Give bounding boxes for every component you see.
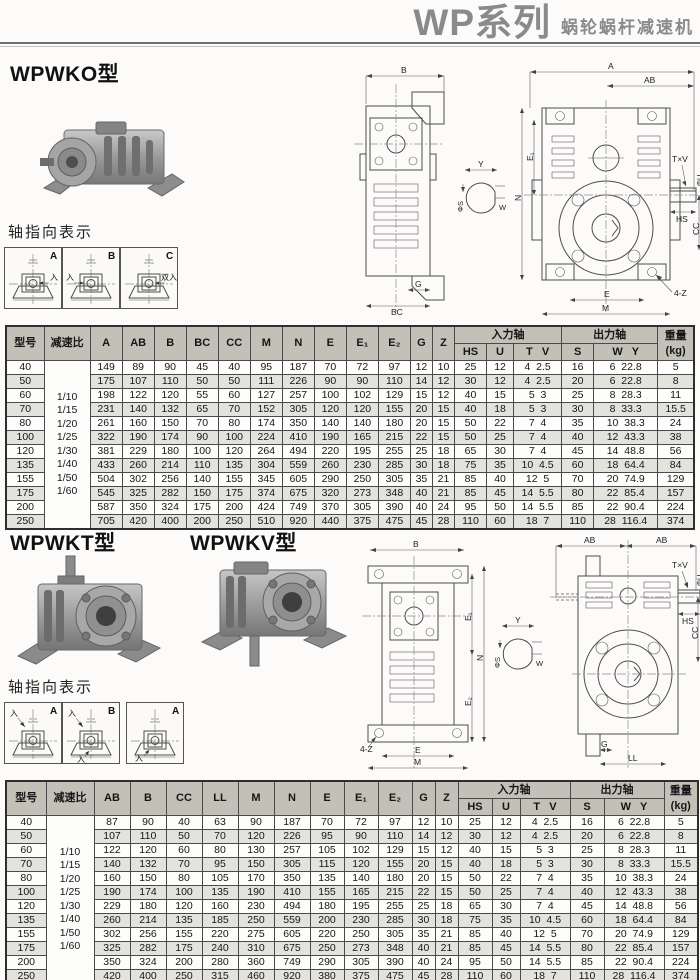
value-cell: 110	[454, 515, 486, 530]
value-cell: 381	[90, 445, 122, 459]
value-cell: 87	[94, 816, 130, 830]
value-cell: 226	[282, 375, 314, 389]
svg-text:A: A	[172, 706, 179, 717]
col-group-output-shaft: 出力轴	[562, 326, 658, 344]
value-cell: 35	[570, 872, 604, 886]
value-cell: 80	[218, 417, 250, 431]
value-cell: 4 2.5	[520, 816, 570, 830]
value-cell: 155	[166, 928, 202, 942]
value-cell: 22 85.4	[594, 487, 658, 501]
value-cell: 160	[202, 900, 238, 914]
value-cell: 175	[218, 487, 250, 501]
col-group-input-shaft: 入力轴	[458, 781, 570, 799]
value-cell: 5	[664, 816, 698, 830]
value-cell: 320	[314, 487, 346, 501]
value-cell: 60	[218, 389, 250, 403]
wpwkv-product-photo	[198, 558, 348, 670]
wpwkt-heading: WPWKT型	[10, 527, 116, 557]
value-cell: 310	[238, 942, 274, 956]
table-row: 802611601507080174350140140180201550227 …	[6, 417, 694, 431]
value-cell: 122	[122, 389, 154, 403]
value-cell: 305	[378, 928, 412, 942]
axis-diagram-a: A 入	[4, 247, 62, 309]
col-e: E	[310, 781, 344, 816]
value-cell: 25	[410, 445, 432, 459]
col-ratio: 减速比	[44, 326, 90, 361]
value-cell: 120	[314, 403, 346, 417]
svg-text:HS: HS	[682, 616, 694, 626]
value-cell: 90	[314, 375, 346, 389]
value-cell: 180	[310, 900, 344, 914]
value-cell: 348	[378, 487, 410, 501]
value-cell: 132	[130, 858, 166, 872]
col-g: G	[410, 326, 432, 361]
value-cell: 195	[346, 445, 378, 459]
value-cell: 374	[664, 970, 698, 980]
value-cell: 11	[664, 844, 698, 858]
model-cell: 70	[6, 403, 44, 417]
value-cell: 110	[130, 830, 166, 844]
value-cell: 12 5	[514, 473, 562, 487]
model-cell: 175	[6, 487, 44, 501]
value-cell: 180	[378, 417, 410, 431]
value-cell: 12	[487, 375, 514, 389]
value-cell: 8 28.3	[604, 844, 664, 858]
wpwkt-spec-table-wrap: 型号 减速比 AB B CC LL M N E E₁ E₂ G Z 入力轴 出力…	[5, 780, 699, 980]
col-e2: E₂	[378, 326, 410, 361]
col-wy: W Y	[594, 344, 658, 361]
value-cell: 15	[410, 389, 432, 403]
value-cell: 65	[454, 445, 486, 459]
table-row: 601981221205560127257100102129151240155 …	[6, 389, 694, 403]
value-cell: 20	[570, 830, 604, 844]
value-cell: 6 22.8	[604, 816, 664, 830]
value-cell: 240	[202, 942, 238, 956]
value-cell: 559	[274, 914, 310, 928]
table-row: 1352602141351852505592002302853018753510…	[6, 914, 698, 928]
value-cell: 25	[458, 816, 492, 830]
table-row: 1753252821752403106752502733484021854514…	[6, 942, 698, 956]
svg-text:T×V: T×V	[672, 560, 688, 570]
value-cell: 15.5	[658, 403, 694, 417]
value-cell: 224	[664, 956, 698, 970]
value-cell: 14	[412, 830, 435, 844]
value-cell: 155	[218, 473, 250, 487]
value-cell: 190	[122, 431, 154, 445]
col-cc: CC	[218, 326, 250, 361]
col-a: A	[90, 326, 122, 361]
svg-text:E: E	[604, 289, 610, 299]
wpwkt-spec-table: 型号 减速比 AB B CC LL M N E E₁ E₂ G Z 入力轴 出力…	[5, 780, 699, 980]
value-cell: 135	[202, 886, 238, 900]
table-row: 1755453252821501753746753202733484021854…	[6, 487, 694, 501]
svg-text:双入: 双入	[161, 273, 177, 282]
axis-diagram-2c: A 入	[126, 702, 184, 764]
value-cell: 65	[458, 900, 492, 914]
value-cell: 97	[378, 816, 412, 830]
value-cell: 18	[487, 403, 514, 417]
value-cell: 135	[166, 914, 202, 928]
value-cell: 433	[90, 459, 122, 473]
value-cell: 230	[346, 459, 378, 473]
col-group-input-shaft: 入力轴	[454, 326, 561, 344]
value-cell: 140	[314, 417, 346, 431]
value-cell: 30	[410, 459, 432, 473]
wpwko-heading: WPWKO型	[10, 58, 119, 88]
value-cell: 675	[274, 942, 310, 956]
value-cell: 85	[570, 956, 604, 970]
catalog-page: WP系列 蜗轮蜗杆减速机 WPWKO型 轴指向表示	[0, 0, 700, 980]
col-model: 型号	[6, 326, 44, 361]
table-row: 100190174100135190410155165215221550257 …	[6, 886, 698, 900]
value-cell: 475	[378, 970, 412, 980]
value-cell: 12	[432, 375, 454, 389]
value-cell: 102	[346, 389, 378, 403]
model-cell: 60	[6, 844, 46, 858]
value-cell: 72	[344, 816, 378, 830]
table-row: 401/10 1/15 1/20 1/25 1/30 1/40 1/50 1/6…	[6, 816, 698, 830]
col-ab: AB	[122, 326, 154, 361]
series-subtitle: 蜗轮蜗杆减速机	[561, 13, 694, 42]
value-cell: 256	[154, 473, 186, 487]
value-cell: 56	[658, 445, 694, 459]
col-e1: E₁	[344, 781, 378, 816]
value-cell: 60	[166, 844, 202, 858]
value-cell: 95	[458, 956, 492, 970]
value-cell: 70	[570, 928, 604, 942]
value-cell: 24	[658, 417, 694, 431]
value-cell: 30	[570, 858, 604, 872]
value-cell: 12	[435, 844, 458, 858]
value-cell: 440	[314, 515, 346, 530]
value-cell: 84	[658, 459, 694, 473]
value-cell: 15	[487, 389, 514, 403]
value-cell: 11	[658, 389, 694, 403]
svg-text:入: 入	[135, 754, 143, 763]
svg-text:CC: CC	[691, 223, 700, 235]
value-cell: 370	[314, 501, 346, 515]
value-cell: 129	[378, 389, 410, 403]
value-cell: 40	[454, 389, 486, 403]
value-cell: 150	[238, 858, 274, 872]
value-cell: 348	[378, 942, 412, 956]
value-cell: 120	[130, 844, 166, 858]
value-cell: 120	[346, 403, 378, 417]
value-cell: 18	[432, 459, 454, 473]
value-cell: 35	[492, 914, 520, 928]
model-cell: 80	[6, 417, 44, 431]
svg-text:入: 入	[50, 273, 58, 282]
value-cell: 15	[432, 403, 454, 417]
value-cell: 85	[454, 473, 486, 487]
value-cell: 84	[664, 914, 698, 928]
table-row: 401/10 1/15 1/20 1/25 1/30 1/40 1/50 1/6…	[6, 361, 694, 375]
axis-direction-label-1: 轴指向表示	[8, 221, 93, 242]
model-cell: 120	[6, 445, 44, 459]
model-cell: 135	[6, 914, 46, 928]
svg-text:N: N	[513, 195, 523, 201]
model-cell: 60	[6, 389, 44, 403]
value-cell: 255	[378, 445, 410, 459]
value-cell: 22	[412, 886, 435, 900]
value-cell: 200	[218, 501, 250, 515]
value-cell: 100	[218, 431, 250, 445]
value-cell: 15	[435, 886, 458, 900]
value-cell: 129	[658, 473, 694, 487]
value-cell: 157	[658, 487, 694, 501]
value-cell: 8 33.3	[604, 858, 664, 872]
value-cell: 10	[435, 816, 458, 830]
svg-text:入: 入	[77, 755, 85, 764]
value-cell: 324	[154, 501, 186, 515]
value-cell: 50	[218, 375, 250, 389]
value-cell: 24	[664, 872, 698, 886]
value-cell: 105	[310, 844, 344, 858]
value-cell: 229	[94, 900, 130, 914]
value-cell: 20	[410, 417, 432, 431]
col-group-output-shaft: 出力轴	[570, 781, 664, 799]
value-cell: 129	[378, 844, 412, 858]
col-s: S	[570, 799, 604, 816]
svg-text:ΦU: ΦU	[695, 175, 700, 186]
value-cell: 10	[432, 361, 454, 375]
svg-text:W: W	[536, 659, 544, 668]
model-cell: 40	[6, 361, 44, 375]
value-cell: 7 4	[514, 431, 562, 445]
value-cell: 30	[562, 403, 594, 417]
value-cell: 50	[458, 872, 492, 886]
value-cell: 40	[458, 844, 492, 858]
value-cell: 390	[378, 501, 410, 515]
svg-text:C: C	[166, 251, 173, 262]
value-cell: 374	[250, 487, 282, 501]
value-cell: 285	[378, 914, 412, 928]
value-cell: 5 3	[520, 858, 570, 872]
value-cell: 175	[166, 942, 202, 956]
value-cell: 195	[344, 900, 378, 914]
value-cell: 315	[202, 970, 238, 980]
value-cell: 24	[435, 956, 458, 970]
value-cell: 40	[487, 473, 514, 487]
value-cell: 16	[562, 361, 594, 375]
col-s: S	[562, 344, 594, 361]
value-cell: 174	[154, 431, 186, 445]
model-cell: 100	[6, 886, 46, 900]
value-cell: 22 90.4	[604, 956, 664, 970]
col-g: G	[412, 781, 435, 816]
svg-text:AB: AB	[656, 535, 668, 545]
value-cell: 102	[344, 844, 378, 858]
value-cell: 21	[435, 942, 458, 956]
value-cell: 605	[274, 928, 310, 942]
value-cell: 50	[186, 375, 218, 389]
value-cell: 18 64.4	[604, 914, 664, 928]
value-cell: 65	[186, 403, 218, 417]
svg-text:A: A	[50, 251, 57, 262]
col-tv: T V	[514, 344, 562, 361]
value-cell: 100	[166, 886, 202, 900]
value-cell: 273	[346, 487, 378, 501]
value-cell: 180	[130, 900, 166, 914]
value-cell: 260	[122, 459, 154, 473]
value-cell: 30	[454, 375, 486, 389]
value-cell: 60	[562, 459, 594, 473]
model-cell: 155	[6, 928, 46, 942]
value-cell: 215	[378, 431, 410, 445]
col-z: Z	[435, 781, 458, 816]
col-model: 型号	[6, 781, 46, 816]
value-cell: 12 43.3	[604, 886, 664, 900]
col-hs: HS	[454, 344, 486, 361]
value-cell: 60	[487, 515, 514, 530]
value-cell: 261	[90, 417, 122, 431]
value-cell: 107	[122, 375, 154, 389]
wpwkt-front-view-drawing: B E₁ E₂ N 4-Z E M	[360, 540, 488, 774]
value-cell: 50	[454, 431, 486, 445]
value-cell: 152	[250, 403, 282, 417]
model-cell: 100	[6, 431, 44, 445]
table-row: 1553022561552202756052202503053521854012…	[6, 928, 698, 942]
wpwko-spec-table: 型号 减速比 A AB B BC CC M N E E₁ E₂ G Z 入力轴 …	[5, 325, 695, 530]
value-cell: 374	[658, 515, 694, 530]
svg-text:M: M	[602, 303, 609, 313]
value-cell: 140	[344, 872, 378, 886]
col-e2: E₂	[378, 781, 412, 816]
value-cell: 220	[202, 928, 238, 942]
value-cell: 14 48.8	[604, 900, 664, 914]
svg-text:HS: HS	[676, 214, 688, 224]
value-cell: 7 4	[514, 417, 562, 431]
value-cell: 70	[202, 830, 238, 844]
value-cell: 22	[492, 872, 520, 886]
value-cell: 85	[454, 487, 486, 501]
value-cell: 28 116.4	[594, 515, 658, 530]
col-cc: CC	[166, 781, 202, 816]
value-cell: 12	[412, 816, 435, 830]
model-cell: 40	[6, 816, 46, 830]
value-cell: 8	[664, 830, 698, 844]
value-cell: 7 4	[520, 872, 570, 886]
value-cell: 18	[435, 900, 458, 914]
wpwko-front-view-drawing: A AB T×V ΦU HS CC E₁	[512, 60, 700, 324]
value-cell: 22 90.4	[594, 501, 658, 515]
value-cell: 187	[282, 361, 314, 375]
model-cell: 250	[6, 970, 46, 980]
value-cell: 559	[282, 459, 314, 473]
value-cell: 229	[122, 445, 154, 459]
value-cell: 5 3	[514, 403, 562, 417]
value-cell: 12	[410, 361, 432, 375]
value-cell: 20	[562, 375, 594, 389]
value-cell: 230	[344, 914, 378, 928]
value-cell: 420	[122, 515, 154, 530]
table-row: 701401327095150305115120155201540185 330…	[6, 858, 698, 872]
value-cell: 15	[435, 872, 458, 886]
value-cell: 80	[166, 872, 202, 886]
value-cell: 280	[202, 956, 238, 970]
value-cell: 675	[282, 487, 314, 501]
value-cell: 174	[130, 886, 166, 900]
value-cell: 214	[154, 459, 186, 473]
value-cell: 120	[238, 830, 274, 844]
value-cell: 257	[282, 389, 314, 403]
value-cell: 350	[122, 501, 154, 515]
value-cell: 155	[378, 403, 410, 417]
value-cell: 215	[378, 886, 412, 900]
value-cell: 7 4	[520, 886, 570, 900]
value-cell: 30	[458, 830, 492, 844]
svg-text:LL: LL	[628, 753, 638, 763]
value-cell: 70	[218, 403, 250, 417]
value-cell: 72	[346, 361, 378, 375]
value-cell: 28	[432, 515, 454, 530]
col-weight: 重量 (kg)	[658, 326, 694, 361]
value-cell: 120	[218, 445, 250, 459]
value-cell: 150	[186, 487, 218, 501]
value-cell: 545	[90, 487, 122, 501]
value-cell: 15	[432, 431, 454, 445]
svg-text:入: 入	[68, 709, 76, 718]
value-cell: 100	[314, 389, 346, 403]
value-cell: 5 3	[514, 389, 562, 403]
value-cell: 40	[562, 431, 594, 445]
svg-text:Y: Y	[515, 615, 521, 625]
value-cell: 20	[412, 858, 435, 872]
wpwkv-side-view-drawing: AB AB T×V ΦU HS CC G L	[548, 534, 700, 774]
value-cell: 282	[154, 487, 186, 501]
value-cell: 224	[250, 431, 282, 445]
value-cell: 250	[238, 914, 274, 928]
wpwkt-product-photo	[14, 554, 164, 674]
svg-text:BC: BC	[391, 307, 403, 317]
wpwko-spec-table-wrap: 型号 减速比 A AB B BC CC M N E E₁ E₂ G Z 入力轴 …	[5, 325, 695, 530]
value-cell: 150	[154, 417, 186, 431]
axis-diagram-c: C 双入	[120, 247, 178, 309]
wpwko-product-photo	[38, 110, 190, 208]
value-cell: 110	[154, 375, 186, 389]
value-cell: 50	[458, 886, 492, 900]
value-cell: 105	[202, 872, 238, 886]
value-cell: 129	[664, 928, 698, 942]
svg-text:B: B	[108, 251, 115, 262]
value-cell: 25	[570, 844, 604, 858]
value-cell: 175	[186, 501, 218, 515]
value-cell: 90	[238, 816, 274, 830]
value-cell: 6 22.8	[594, 375, 658, 389]
value-cell: 40	[570, 886, 604, 900]
value-cell: 325	[122, 487, 154, 501]
table-row: 702311401326570152305120120155201540185 …	[6, 403, 694, 417]
value-cell: 175	[90, 375, 122, 389]
value-cell: 18	[432, 445, 454, 459]
model-cell: 120	[6, 900, 46, 914]
value-cell: 110	[570, 970, 604, 980]
value-cell: 8	[658, 375, 694, 389]
table-row: 5010711050701202269590110141230124 2.520…	[6, 830, 698, 844]
value-cell: 174	[250, 417, 282, 431]
value-cell: 75	[458, 914, 492, 928]
value-cell: 140	[122, 403, 154, 417]
value-cell: 390	[378, 956, 412, 970]
value-cell: 7 4	[520, 900, 570, 914]
value-cell: 14 5.5	[514, 501, 562, 515]
value-cell: 35	[487, 459, 514, 473]
value-cell: 400	[130, 970, 166, 980]
value-cell: 375	[344, 970, 378, 980]
table-row: 1555043022561401553456052902503053521854…	[6, 473, 694, 487]
value-cell: 135	[218, 459, 250, 473]
value-cell: 45	[492, 942, 520, 956]
